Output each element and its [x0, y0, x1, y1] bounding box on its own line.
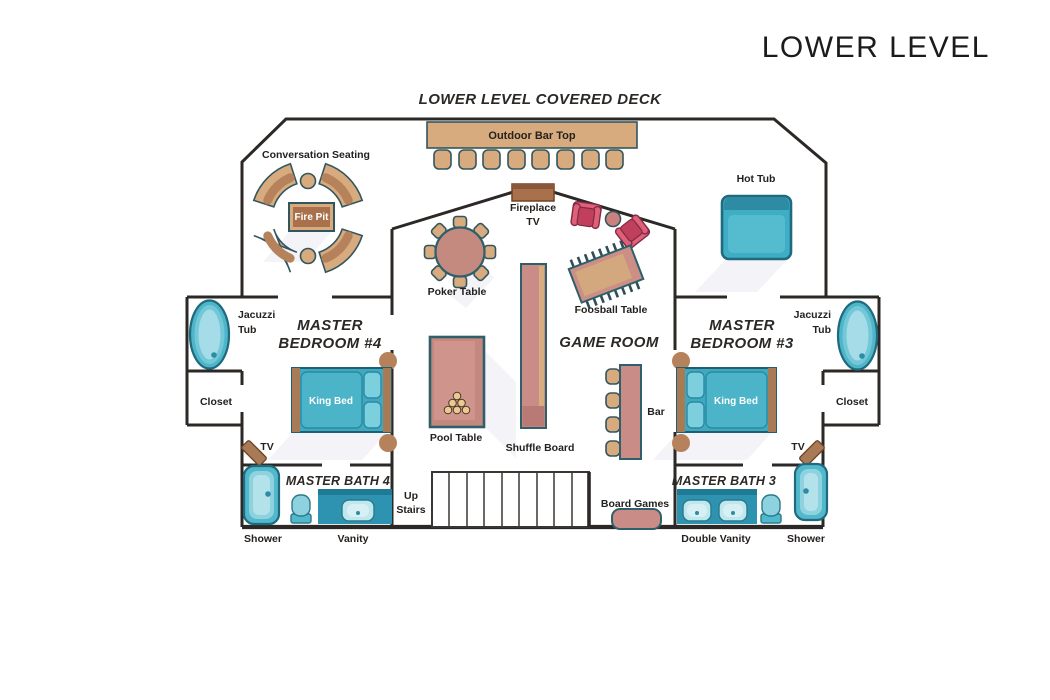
label-board-games: Board Games	[601, 498, 669, 510]
label-conversation-seating: Conversation Seating	[262, 149, 370, 161]
label-jacuzzi3-line2: Tub	[813, 324, 831, 336]
label-shower-4: Shower	[244, 533, 282, 545]
label-jacuzzi4-line1: Jacuzzi	[238, 309, 275, 321]
label-bedroom3-line2: BEDROOM #3	[690, 335, 793, 352]
label-pool-table: Pool Table	[430, 432, 482, 444]
label-closet-3: Closet	[836, 396, 869, 408]
label-king-bed-4: King Bed	[309, 396, 353, 407]
double-vanity-3	[677, 489, 757, 524]
label-shower-3: Shower	[787, 533, 825, 545]
foosball-table	[566, 238, 646, 310]
label-deck-title: LOWER LEVEL COVERED DECK	[419, 91, 662, 108]
label-bar: Bar	[647, 406, 665, 418]
label-king-bed-3: King Bed	[714, 396, 758, 407]
label-jacuzzi4-line2: Tub	[238, 324, 256, 336]
shuffle-board	[521, 264, 546, 428]
label-double-vanity-3: Double Vanity	[681, 533, 751, 545]
jacuzzi-tub-3	[838, 302, 877, 370]
fireplace-tv	[512, 184, 554, 201]
bar-counter	[606, 365, 641, 459]
label-bedroom4-line2: BEDROOM #4	[278, 335, 381, 352]
jacuzzi-tub-4	[190, 301, 229, 369]
label-hot-tub: Hot Tub	[737, 173, 776, 185]
vanity-4	[318, 489, 392, 524]
label-game-room: GAME ROOM	[559, 334, 659, 351]
label-closet-4: Closet	[200, 396, 233, 408]
shower-3	[795, 464, 827, 520]
label-outdoor-bar-top: Outdoor Bar Top	[488, 130, 575, 142]
label-master-bath4: MASTER BATH 4	[286, 474, 390, 488]
toilet-4	[291, 495, 311, 523]
pool-table	[430, 337, 484, 427]
label-fireplace-line2: TV	[526, 216, 539, 228]
label-bedroom4-line1: MASTER	[297, 317, 363, 334]
label-bedroom3-line1: MASTER	[709, 317, 775, 334]
label-master-bath3: MASTER BATH 3	[672, 474, 776, 488]
label-fire-pit: Fire Pit	[295, 212, 330, 223]
board-games-table	[612, 509, 661, 529]
poker-table	[425, 217, 496, 288]
floor-plan-canvas: LOWER LEVEL LOWER LEVEL COVERED DECK Con…	[0, 0, 1050, 700]
hot-tub	[722, 196, 791, 259]
label-up-stairs-line2: Stairs	[396, 504, 425, 516]
label-shuffle-board: Shuffle Board	[506, 442, 575, 454]
label-poker-table: Poker Table	[428, 286, 487, 298]
label-tv-4: TV	[260, 441, 273, 453]
label-fireplace-line1: Fireplace	[510, 202, 556, 214]
side-table	[606, 212, 621, 227]
label-vanity-4: Vanity	[338, 533, 369, 545]
bar-stools	[434, 150, 623, 169]
floor-plan-page: LOWER LEVEL LOWER LEVEL COVERED DECK Con…	[0, 0, 1050, 700]
shower-4	[244, 466, 279, 524]
label-jacuzzi3-line1: Jacuzzi	[794, 309, 831, 321]
staircase	[432, 472, 589, 527]
page-title: LOWER LEVEL	[762, 31, 990, 64]
label-up-stairs-line1: Up	[404, 490, 418, 502]
toilet-3	[761, 495, 781, 523]
label-foosball-table: Foosball Table	[575, 304, 648, 316]
label-tv-3: TV	[791, 441, 804, 453]
